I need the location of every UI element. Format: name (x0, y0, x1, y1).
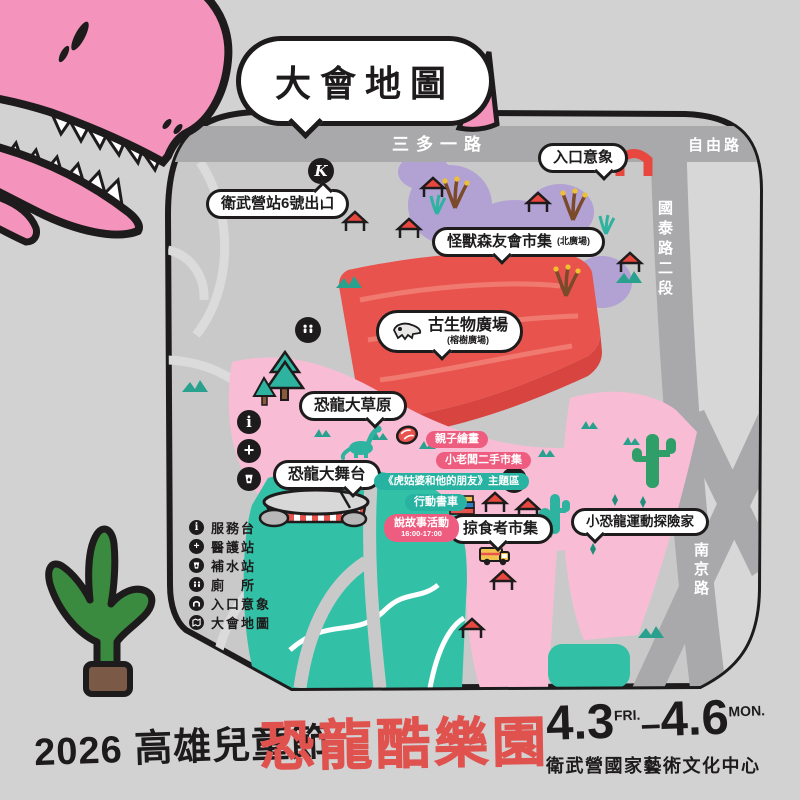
road-label-sanduo: 三多一路 (392, 130, 488, 155)
legend-row-arch: 入口意象 (189, 596, 271, 611)
restroom-icon-plaza (295, 317, 321, 343)
tiger-aunt-theme-pill: 《虎姑婆和他的朋友》主題區 (374, 473, 529, 490)
storytelling-time: 16:00-17:00 (401, 530, 442, 538)
metro-station-icon: K (308, 158, 334, 184)
dino-meadow-label: 恐龍大草原 (314, 398, 392, 414)
predator-market-bubble: 掠食者市集 (448, 514, 553, 544)
map-legend: i 服務台 + 醫護站 補水站 廁 所 入口意象 大會地圖 (189, 520, 271, 630)
medical-station-icon: + (237, 439, 261, 463)
metro-exit-bubble: 衛武營站6號出口 (206, 189, 349, 219)
road-label-guotai: 國泰路二段 (654, 200, 675, 300)
legend-row-restroom: 廁 所 (189, 577, 271, 592)
arch-icon (189, 596, 204, 611)
legend-label: 服務台 (211, 518, 256, 537)
map-title-bubble: 大會地圖 (236, 36, 494, 126)
dino-meadow-bubble: 恐龍大草原 (299, 391, 407, 421)
paleo-plaza-sublabel: (榕樹廣場) (447, 336, 489, 345)
dino-skull-icon (391, 320, 423, 344)
footer-venue: 衛武營國家藝術文化中心 (546, 752, 768, 778)
legend-label: 廁 所 (211, 575, 256, 594)
water-station-icon (237, 467, 261, 491)
metro-badge: K (314, 162, 327, 180)
kid-boss-market-pill: 小老闆二手市集 (436, 452, 531, 469)
legend-label: 補水站 (211, 556, 256, 575)
dinosaur-claw (49, 529, 152, 694)
footer-event-title: 恐龍酷樂園 (259, 697, 550, 781)
legend-label: 大會地圖 (211, 613, 271, 632)
paleo-plaza-bubble: 古生物廣場 (榕樹廣場) (376, 310, 523, 353)
legend-row-map: 大會地圖 (189, 615, 271, 630)
map-title: 大會地圖 (275, 55, 455, 107)
date-end-day: MON. (728, 702, 765, 719)
storytelling-label: 說故事活動 (394, 518, 449, 529)
date-end: 4.6 (660, 691, 730, 747)
little-dino-camp-bubble: 小恐龍運動探險家 (571, 508, 709, 536)
legend-row-medical: + 醫護站 (189, 539, 271, 554)
date-start-day: FRI. (614, 707, 641, 724)
road-label-nanjing: 南京路 (690, 542, 711, 599)
legend-row-water: 補水站 (189, 558, 271, 573)
monster-market-bubble: 怪獸森友會市集 (北廣場) (432, 227, 605, 257)
metro-exit-label: 衛武營站6號出口 (221, 196, 334, 212)
info-icon: i (189, 520, 204, 535)
footer-dates: 4.3FRI.–4.6MON. (545, 688, 769, 752)
restroom-icon (189, 577, 204, 592)
footer-date-venue: 4.3FRI.–4.6MON. 衛武營國家藝術文化中心 (546, 692, 768, 778)
entrance-bubble: 入口意象 (538, 143, 628, 173)
medical-icon: + (189, 539, 204, 554)
legend-label: 醫護站 (211, 537, 256, 556)
date-start: 4.3 (545, 695, 615, 751)
legend-label: 入口意象 (211, 594, 271, 613)
map-icon (189, 615, 204, 630)
monster-market-sublabel: (北廣場) (557, 237, 590, 246)
book-truck-pill: 行動書車 (405, 494, 467, 511)
legend-row-info: i 服務台 (189, 520, 271, 535)
event-map-poster: 三多一路 自由路 國泰路二段 南京路 K i + 大會地圖 衛武營站6號出口 入… (0, 0, 800, 800)
parent-child-paint-pill: 親子繪畫 (426, 431, 488, 448)
date-separator: – (640, 703, 661, 745)
paleo-plaza-label: 古生物廣場 (428, 318, 508, 335)
dino-stage-bubble: 恐龍大舞台 (273, 460, 381, 490)
road-label-ziyou: 自由路 (688, 134, 742, 155)
storytelling-pill: 說故事活動 16:00-17:00 (384, 514, 459, 542)
water-icon (189, 558, 204, 573)
info-desk-icon: i (237, 410, 261, 434)
little-dino-camp-label: 小恐龍運動探險家 (586, 515, 694, 529)
